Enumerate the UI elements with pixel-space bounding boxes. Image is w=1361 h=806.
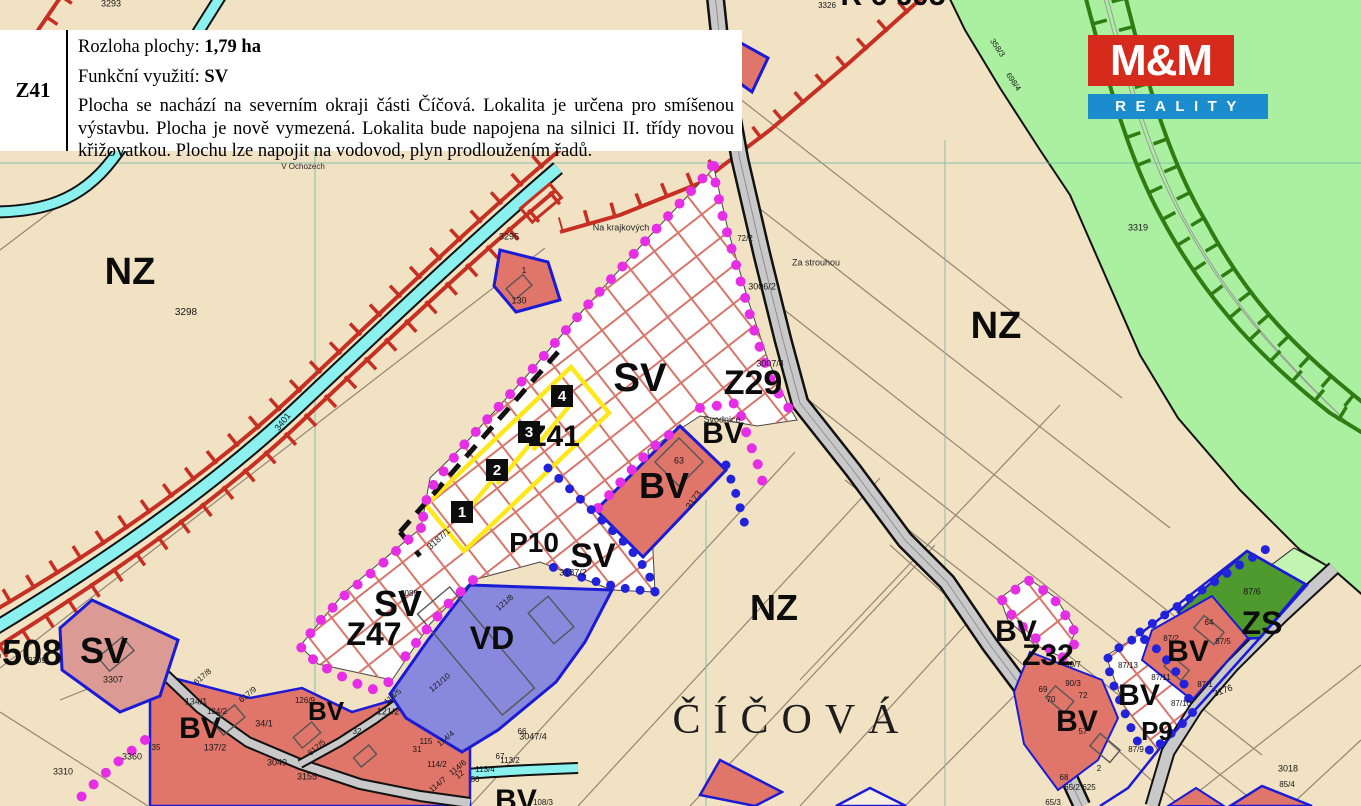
parcel-number-130: 130 bbox=[511, 297, 526, 306]
parcel-number-87-9: 87/9 bbox=[1128, 746, 1144, 754]
parcel-number-3319: 3319 bbox=[1128, 224, 1148, 233]
plot-code: Z41 bbox=[0, 30, 68, 151]
parcel-number-63: 63 bbox=[674, 457, 684, 466]
parcel-number-3176: 3176 bbox=[1212, 683, 1234, 698]
zone-label-nz-east: NZ bbox=[971, 307, 1022, 345]
place-label-v-ochozech: V Ochozech bbox=[281, 163, 325, 171]
use-row: Funkční využití: SV bbox=[78, 67, 734, 88]
parcel-number-698-4: 698/4 bbox=[1004, 71, 1022, 92]
plot-number-box-1: 1 bbox=[451, 501, 473, 523]
zone-label-sv-west: SV bbox=[80, 633, 128, 669]
parcel-number-87-1: 87/1 bbox=[1197, 681, 1213, 689]
area-label: Rozloha plochy: bbox=[78, 37, 200, 57]
parcel-number-3187-1: 3187/1 bbox=[426, 526, 452, 551]
parcel-number-69: 69 bbox=[1039, 686, 1048, 694]
parcel-number-3187-2: 3187/2 bbox=[559, 569, 587, 578]
parcel-number-3018: 3018 bbox=[1278, 765, 1298, 774]
parcel-number-72: 72 bbox=[1079, 692, 1088, 700]
parcel-number-3401: 3401 bbox=[273, 411, 292, 432]
parcel-number-114-7: 114/7 bbox=[428, 776, 448, 795]
parcel-number-65-3: 65/3 bbox=[1045, 799, 1061, 806]
parcel-number-68: 68 bbox=[1060, 774, 1069, 782]
place-label-za-strouhou: Za strouhou bbox=[792, 259, 840, 268]
parcel-number-87-11: 87/11 bbox=[1151, 674, 1170, 682]
zone-label-z29: Z29 bbox=[724, 366, 783, 400]
zoning-map-screenshot: NZNZNZSVZ29Z41BVBVP10SVSVZ47SV-508BVBVBV… bbox=[0, 0, 1361, 806]
parcel-number-85-4: 85/4 bbox=[1279, 781, 1295, 789]
parcel-number-64: 64 bbox=[1205, 619, 1214, 627]
parcel-number-32: 32 bbox=[353, 728, 362, 736]
plot-number-box-2: 2 bbox=[486, 459, 508, 481]
zone-label-bv-p9: BV bbox=[1118, 681, 1160, 711]
parcel-number-3295: 3295 bbox=[499, 233, 519, 242]
zone-label-p9: P9 bbox=[1141, 718, 1173, 744]
parcel-number-134-1: 134/1 bbox=[185, 698, 208, 707]
parcel-number-3326: 3326 bbox=[818, 2, 836, 10]
parcel-number-3298: 3298 bbox=[175, 308, 197, 318]
parcel-number-3155: 3155 bbox=[297, 773, 317, 782]
parcel-number-87-6: 87/6 bbox=[1243, 588, 1261, 597]
parcel-number-114-4: 114/4 bbox=[436, 730, 456, 749]
parcel-number-2: 2 bbox=[1097, 765, 1101, 773]
parcel-number-121-10: 121/10 bbox=[428, 672, 452, 694]
place-label-svodnice: Svodnice bbox=[703, 416, 740, 425]
parcel-number-65-2: 65/2 bbox=[1064, 784, 1080, 792]
parcel-number-108-3: 108/3 bbox=[533, 799, 553, 806]
parcel-number-72-2: 72/2 bbox=[737, 235, 753, 243]
parcel-number-137-2: 137/2 bbox=[204, 744, 227, 753]
area-value: 1,79 ha bbox=[204, 37, 261, 57]
zone-label-corridor: R 6 605 bbox=[840, 0, 945, 11]
parcel-number-3293: 3293 bbox=[101, 0, 121, 9]
parcel-number-617-8: 617/8 bbox=[193, 667, 213, 686]
parcel-number-114-2: 114/2 bbox=[427, 761, 446, 769]
description-line-2: výstavbu. Plocha je nově vymezená. Lokal… bbox=[78, 118, 734, 141]
parcel-number-134-2: 134/2 bbox=[207, 708, 227, 716]
logo-top: M&M bbox=[1088, 35, 1234, 86]
parcel-number-87-13: 87/13 bbox=[1118, 662, 1138, 670]
info-panel: Z41 Rozloha plochy: 1,79 ha Funkční využ… bbox=[0, 30, 742, 151]
place-label-na-krajkovych: Na krajkových bbox=[593, 224, 650, 233]
parcel-number-31: 31 bbox=[413, 746, 422, 754]
parcel-number-3309: 3309 bbox=[28, 657, 46, 665]
parcel-number-617-9: 617/9 bbox=[238, 685, 258, 704]
logo-bottom: REALITY bbox=[1088, 94, 1268, 119]
parcel-number-90-3: 90/3 bbox=[1065, 680, 1081, 688]
parcel-number-87-10: 87/10 bbox=[1171, 700, 1191, 708]
plot-number-box-3: 3 bbox=[518, 421, 540, 443]
plot-number-box-4: 4 bbox=[551, 385, 573, 407]
parcel-number-3085: 3085 bbox=[400, 590, 418, 598]
parcel-number-126-9: 126/9 bbox=[295, 697, 315, 705]
parcel-number-114-5: 114/5 bbox=[383, 688, 403, 707]
parcel-number-625: 625 bbox=[1082, 784, 1095, 792]
parcel-number-3007-4: 3007/4 bbox=[756, 360, 784, 369]
zone-label-bv-se: BV bbox=[1056, 707, 1098, 737]
parcel-number-3047-4: 3047/4 bbox=[519, 733, 547, 742]
parcel-number-3310: 3310 bbox=[53, 768, 73, 777]
parcel-number-3307: 3307 bbox=[103, 676, 123, 685]
zone-label-p10: P10 bbox=[509, 529, 559, 557]
zone-label-bv-center: BV bbox=[639, 468, 689, 504]
parcel-number-113-4: 113/4 bbox=[475, 766, 494, 774]
description-line-3: křižovatkou. Plochu lze napojit na vodov… bbox=[78, 140, 734, 163]
parcel-number-34-1: 34/1 bbox=[255, 720, 273, 729]
plot-description: Plocha se nachází na severním okraji čás… bbox=[78, 95, 734, 163]
parcel-number-121-8: 121/8 bbox=[495, 593, 515, 612]
parcel-number-1: 1 bbox=[522, 267, 526, 275]
zone-label-bv-bottom: BV bbox=[495, 786, 537, 806]
zone-label-bv-village-w: BV bbox=[179, 714, 221, 744]
parcel-number-70: 70 bbox=[1047, 696, 1056, 704]
parcel-number-35: 35 bbox=[152, 744, 161, 752]
parcel-number-90-7: 90/7 bbox=[1065, 661, 1081, 669]
use-label: Funkční využití: bbox=[78, 67, 200, 87]
mm-reality-logo: M&M REALITY bbox=[1088, 35, 1268, 119]
zone-label-nz-south: NZ bbox=[750, 590, 798, 626]
parcel-number-30: 30 bbox=[471, 776, 480, 784]
zone-label-vd: VD bbox=[470, 622, 514, 654]
parcel-number-87-2: 87/2 bbox=[1163, 635, 1179, 643]
zone-label-z47: Z47 bbox=[346, 618, 401, 650]
zone-label-sv-main: SV bbox=[613, 358, 666, 398]
parcel-number-57: 57 bbox=[1079, 728, 1088, 736]
zone-label-zs: ZS bbox=[1242, 607, 1283, 639]
description-line-1: Plocha se nachází na severním okraji čás… bbox=[78, 95, 734, 118]
parcel-number-121-2: 121/2 bbox=[377, 708, 400, 717]
town-label-cicova: ČÍČOVÁ bbox=[672, 699, 911, 741]
area-row: Rozloha plochy: 1,79 ha bbox=[78, 37, 734, 58]
parcel-number-12: 12 bbox=[454, 769, 466, 781]
use-value: SV bbox=[204, 67, 228, 87]
parcel-number-3006-2: 3006/2 bbox=[748, 283, 776, 292]
parcel-number-617-5: 617/5 bbox=[307, 738, 327, 757]
parcel-number-358-3: 358/3 bbox=[988, 37, 1006, 58]
parcel-number-3049: 3049 bbox=[267, 759, 287, 768]
parcel-number-3360: 3360 bbox=[122, 753, 142, 762]
zone-label-508: -508 bbox=[0, 635, 62, 671]
parcel-number-87-5: 87/5 bbox=[1215, 638, 1231, 646]
parcel-number-67: 67 bbox=[496, 753, 505, 761]
zone-label-nz-west: NZ bbox=[105, 253, 156, 291]
